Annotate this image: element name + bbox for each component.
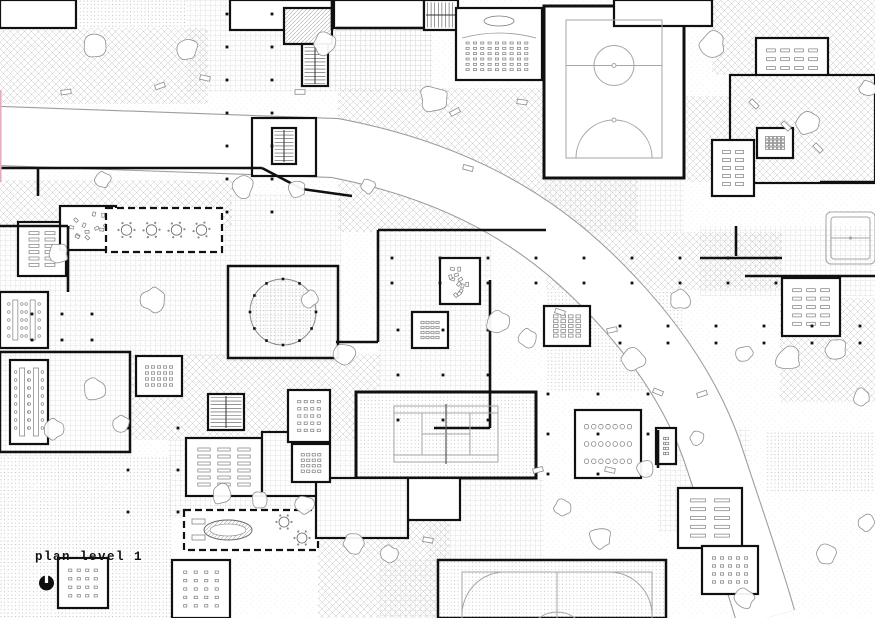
seat [488, 69, 491, 71]
chair [203, 221, 205, 223]
desk [215, 571, 218, 573]
column [487, 282, 490, 285]
seat [488, 42, 491, 44]
column [271, 145, 274, 148]
site-plan-drawing [0, 0, 875, 618]
chair [121, 236, 123, 238]
column [667, 325, 670, 328]
chair [28, 419, 31, 422]
play-table [454, 273, 459, 277]
building [334, 0, 424, 28]
desk [151, 372, 154, 374]
center-spot [612, 64, 616, 68]
column [310, 327, 313, 330]
desk [317, 422, 320, 424]
desk [627, 459, 631, 464]
chair [167, 230, 169, 232]
desk [553, 329, 558, 332]
column [631, 257, 634, 260]
chair [28, 371, 31, 374]
seat [466, 58, 469, 60]
column [647, 433, 650, 436]
desk [298, 415, 301, 417]
desk [553, 334, 558, 337]
chair [14, 395, 17, 398]
seat [525, 53, 528, 55]
column [397, 374, 400, 377]
round-table [297, 533, 307, 543]
desk [151, 378, 154, 380]
desk [720, 557, 723, 559]
building [208, 394, 244, 430]
desk [29, 257, 39, 260]
desk [821, 289, 830, 292]
play-table [458, 267, 461, 271]
round-table [146, 225, 156, 235]
desk [735, 167, 743, 170]
chair [28, 411, 31, 414]
column [177, 427, 180, 430]
desk [781, 140, 784, 142]
column [226, 46, 229, 49]
chair [41, 427, 44, 430]
desk [184, 605, 187, 607]
desk [307, 454, 310, 456]
column [315, 311, 318, 314]
building-floor [0, 292, 48, 348]
chair [129, 222, 131, 224]
desk [307, 459, 310, 461]
north-notch [45, 574, 48, 583]
desk [584, 459, 588, 464]
chair [41, 395, 44, 398]
desk [691, 499, 706, 502]
desk [169, 378, 172, 380]
desk [426, 331, 429, 333]
building [456, 8, 542, 80]
seat [503, 63, 506, 65]
desk [744, 557, 747, 559]
column [715, 342, 718, 345]
column [271, 13, 274, 16]
desk [304, 429, 307, 431]
long-table [33, 368, 38, 436]
seat [517, 42, 520, 44]
desk [298, 429, 301, 431]
desk [691, 525, 706, 528]
building-floor [172, 560, 230, 618]
desk [238, 455, 250, 458]
desk [426, 321, 429, 323]
desk [735, 159, 743, 162]
desk [769, 147, 772, 149]
column [811, 342, 814, 345]
desk [712, 573, 715, 575]
seat [488, 47, 491, 49]
desk [317, 415, 320, 417]
seat [466, 63, 469, 65]
desk [238, 469, 250, 472]
column [127, 469, 130, 472]
column [597, 433, 600, 436]
desk [198, 455, 210, 458]
desk [665, 437, 668, 439]
desk [821, 314, 830, 317]
column [397, 329, 400, 332]
column [667, 342, 670, 345]
desk [421, 336, 424, 338]
desk [777, 147, 780, 149]
desk [205, 571, 208, 573]
desk [807, 289, 816, 292]
building-floor [0, 0, 76, 28]
column [127, 511, 130, 514]
long-table [13, 300, 18, 340]
column [249, 311, 252, 314]
desk [312, 470, 315, 472]
chair [195, 223, 197, 225]
play-table [461, 284, 465, 288]
building [424, 0, 458, 30]
chair [38, 303, 41, 306]
chair [21, 319, 24, 322]
desk [722, 167, 730, 170]
tree [84, 34, 106, 57]
desk [793, 306, 802, 309]
building [172, 560, 230, 618]
building-floor [702, 546, 758, 594]
chair [41, 403, 44, 406]
desk [69, 595, 72, 597]
seat [481, 69, 484, 71]
desk [194, 579, 197, 581]
desk [163, 378, 166, 380]
seat [517, 63, 520, 65]
seat [473, 58, 476, 60]
desk [184, 588, 187, 590]
desk [715, 517, 730, 520]
desk [728, 565, 731, 567]
desk [728, 573, 731, 575]
seat [525, 69, 528, 71]
desk [765, 137, 768, 139]
desk [317, 408, 320, 410]
column [61, 313, 64, 316]
desk [318, 454, 321, 456]
column [282, 344, 285, 347]
desk [773, 140, 776, 142]
column [715, 325, 718, 328]
chair [28, 403, 31, 406]
desk [735, 151, 743, 154]
desk [218, 469, 230, 472]
column [253, 294, 256, 297]
desk [45, 232, 55, 235]
seat [488, 63, 491, 65]
desk [145, 372, 148, 374]
play-table [100, 228, 104, 231]
column [91, 339, 94, 342]
desk [728, 581, 731, 583]
desk [421, 326, 424, 328]
play-table [85, 230, 89, 233]
seat [495, 53, 498, 55]
bench [295, 90, 305, 95]
desk [198, 476, 210, 479]
chair [28, 379, 31, 382]
bench [61, 89, 72, 95]
chair [25, 327, 28, 330]
chair [293, 537, 295, 539]
desk [304, 422, 307, 424]
column [439, 257, 442, 260]
desk [29, 232, 39, 235]
column [226, 79, 229, 82]
column [679, 282, 682, 285]
desk [568, 334, 573, 337]
chair [158, 229, 160, 231]
desk [436, 326, 439, 328]
side-desk [192, 519, 205, 524]
desk [431, 321, 434, 323]
desk [238, 462, 250, 465]
chair [25, 319, 28, 322]
building [438, 560, 666, 618]
desk [301, 465, 304, 467]
desk [576, 325, 581, 328]
desk [145, 378, 148, 380]
desk [722, 151, 730, 154]
desk [238, 483, 250, 486]
seat [481, 58, 484, 60]
desk [145, 384, 148, 386]
desk [29, 251, 39, 254]
seat [503, 47, 506, 49]
seat [517, 69, 520, 71]
column [547, 473, 550, 476]
desk [665, 452, 668, 454]
desk [744, 573, 747, 575]
chair [41, 379, 44, 382]
column [487, 419, 490, 422]
ground-stipple-patch [766, 430, 875, 492]
desk [777, 140, 780, 142]
column [397, 419, 400, 422]
building [614, 0, 712, 26]
seat [510, 42, 513, 44]
desk [317, 400, 320, 402]
desk [205, 579, 208, 581]
desk [735, 183, 743, 186]
column [271, 112, 274, 115]
desk [720, 581, 723, 583]
desk [793, 297, 802, 300]
desk [151, 384, 154, 386]
seat [473, 53, 476, 55]
column [597, 473, 600, 476]
building [136, 356, 182, 396]
desk [576, 334, 581, 337]
seat [525, 47, 528, 49]
desk [45, 263, 55, 266]
seat [517, 58, 520, 60]
seat [510, 58, 513, 60]
desk [715, 499, 730, 502]
desk [781, 144, 784, 146]
desk [157, 366, 160, 368]
column [775, 257, 778, 260]
desk [736, 581, 739, 583]
chair [154, 222, 156, 224]
column [619, 325, 622, 328]
desk [298, 400, 301, 402]
seat [517, 47, 520, 49]
seat [481, 53, 484, 55]
column [487, 257, 490, 260]
chair [146, 222, 148, 224]
desk [809, 49, 818, 52]
desk [795, 49, 804, 52]
desk [781, 137, 784, 139]
chair [287, 514, 289, 516]
desk [194, 588, 197, 590]
chair [308, 537, 310, 539]
desk [613, 442, 617, 447]
chair [14, 387, 17, 390]
play-table [449, 275, 453, 280]
desk [773, 137, 776, 139]
desk [715, 534, 730, 537]
desk [722, 183, 730, 186]
desk [795, 58, 804, 61]
column [31, 339, 34, 342]
chair [25, 311, 28, 314]
desk [184, 571, 187, 573]
desk [561, 334, 566, 337]
column [487, 374, 490, 377]
building [10, 360, 48, 444]
desk [767, 49, 776, 52]
desk [94, 595, 97, 597]
column [547, 393, 550, 396]
chair [121, 222, 123, 224]
seat [510, 47, 513, 49]
desk [215, 605, 218, 607]
desk [77, 595, 80, 597]
desk [426, 326, 429, 328]
chair [279, 514, 281, 516]
desk [426, 336, 429, 338]
column [775, 282, 778, 285]
column [226, 13, 229, 16]
desk [568, 315, 573, 318]
building [757, 128, 793, 158]
plan-sheet: plan level 1 [0, 0, 875, 618]
play-table [69, 226, 73, 230]
desk [431, 326, 434, 328]
desk [712, 565, 715, 567]
desk [311, 408, 314, 410]
seat [503, 53, 506, 55]
desk [151, 366, 154, 368]
desk [553, 315, 558, 318]
building [544, 6, 684, 178]
seat [525, 63, 528, 65]
stage-table [484, 16, 514, 26]
oval-table-inner [210, 524, 246, 536]
desk [157, 384, 160, 386]
desk [421, 331, 424, 333]
desk [736, 565, 739, 567]
column [619, 342, 622, 345]
chair [205, 235, 207, 237]
column [271, 79, 274, 82]
chair [38, 335, 41, 338]
desk [311, 415, 314, 417]
desk [620, 459, 624, 464]
building [406, 478, 460, 520]
chair [21, 335, 24, 338]
desk [163, 372, 166, 374]
seat [503, 58, 506, 60]
chair [28, 427, 31, 430]
desk [606, 442, 610, 447]
building [712, 140, 754, 196]
chair [197, 236, 199, 238]
column [763, 342, 766, 345]
chair [155, 236, 157, 238]
building-floor [678, 488, 742, 548]
chair [14, 403, 17, 406]
seat [481, 63, 484, 65]
chair [21, 311, 24, 314]
desk [592, 459, 596, 464]
chair [38, 319, 41, 322]
seat [525, 42, 528, 44]
column [811, 325, 814, 328]
desk [301, 459, 304, 461]
chair [179, 222, 181, 224]
north-arrow-icon [38, 574, 55, 591]
desk [215, 579, 218, 581]
chair [297, 543, 299, 545]
desk [769, 144, 772, 146]
desk [765, 144, 768, 146]
chair [41, 419, 44, 422]
play-table [92, 212, 96, 217]
column [31, 313, 34, 316]
chair [28, 395, 31, 398]
desk [436, 321, 439, 323]
column [597, 393, 600, 396]
desk [807, 306, 816, 309]
desk [157, 378, 160, 380]
round-table [171, 225, 181, 235]
desk [311, 429, 314, 431]
chair [41, 411, 44, 414]
chair [147, 236, 149, 238]
desk [793, 322, 802, 325]
desk [765, 140, 768, 142]
building [0, 292, 48, 348]
desk [421, 321, 424, 323]
chair [279, 527, 281, 529]
play-table [450, 267, 454, 271]
desk [317, 429, 320, 431]
desk [431, 331, 434, 333]
desk [318, 459, 321, 461]
desk [793, 314, 802, 317]
